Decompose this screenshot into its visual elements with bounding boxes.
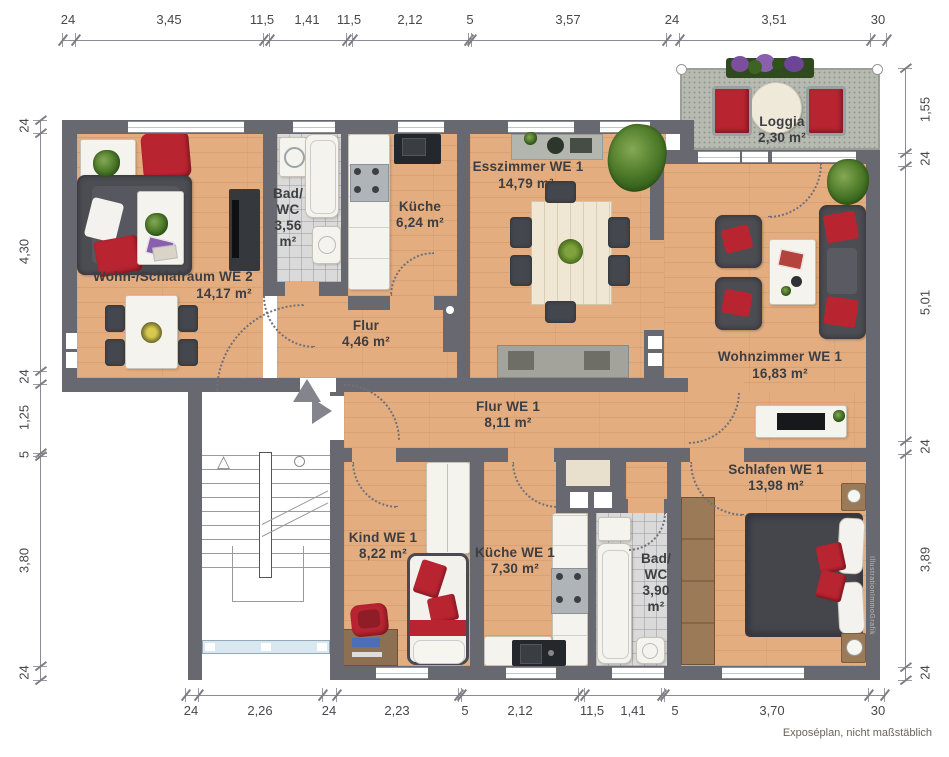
dim-label: 1,55 — [918, 86, 933, 134]
dim-label: 2,23 — [373, 703, 421, 718]
stair-pole-icon — [294, 456, 305, 467]
room-label-esszimmer: Esszimmer WE 1 — [452, 159, 604, 174]
dim-label: 24 — [918, 135, 933, 183]
dim-label: 24 — [17, 649, 32, 697]
pillow — [721, 289, 753, 317]
chair — [510, 255, 532, 286]
tv-screen — [777, 413, 825, 430]
dim-tick — [905, 68, 906, 680]
dim-label: 24 — [305, 703, 353, 718]
room-area-esszimmer: 14,79 m² — [488, 176, 564, 191]
dim-label: 11,5 — [238, 12, 286, 27]
shaft-niche — [66, 352, 77, 368]
pillow — [823, 210, 859, 243]
pillow — [413, 640, 465, 664]
wardrobe — [426, 462, 470, 554]
dim-label: 4,30 — [17, 228, 32, 276]
burner — [574, 596, 581, 603]
chair-seat — [357, 609, 381, 629]
dim-tick — [185, 695, 884, 696]
flowers — [784, 56, 804, 72]
room-area-kueche-we1: 7,30 m² — [477, 561, 553, 576]
door-schlafen — [690, 448, 744, 462]
dim-label: 24 — [918, 649, 933, 697]
loggia-post-icon — [676, 64, 687, 75]
dim-tick — [40, 120, 41, 680]
dim-label: 2,26 — [236, 703, 284, 718]
room-label-we2-bad: Bad/ — [264, 186, 312, 201]
bathtub-inner — [310, 140, 336, 214]
shaft-niche — [648, 336, 662, 349]
window — [293, 121, 335, 133]
laptop — [352, 638, 380, 647]
dim-label: 5 — [651, 703, 699, 718]
flowers-leaf — [772, 58, 784, 70]
room-area-loggia: 2,30 m² — [746, 130, 818, 145]
washer-door-icon — [284, 147, 305, 168]
chair — [608, 217, 630, 248]
dim-label: 5,01 — [918, 279, 933, 327]
blanket — [410, 620, 466, 636]
room-label-we2: Wohn-/Schlafraum WE 2 — [75, 269, 271, 284]
sofa-seat — [827, 248, 857, 294]
dim-label: 24 — [648, 12, 696, 27]
shaft-niche — [570, 492, 588, 508]
chair — [510, 217, 532, 248]
dim-label: 3,89 — [918, 536, 933, 584]
pillow — [815, 542, 846, 575]
window — [128, 121, 244, 133]
dim-tick — [62, 40, 886, 41]
chair — [178, 305, 198, 332]
room-label-bad-we1: WC — [632, 567, 680, 582]
shaft-niche — [66, 333, 77, 349]
dim-label: 11,5 — [325, 12, 373, 27]
door-wohnzimmer — [688, 378, 744, 392]
dim-label: 3,51 — [750, 12, 798, 27]
window — [506, 667, 556, 679]
lamp-icon — [846, 639, 863, 656]
window — [722, 667, 804, 679]
burner — [354, 168, 361, 175]
room-label-bad-we1: Bad/ — [632, 551, 680, 566]
bathtub-inner — [602, 550, 629, 659]
dim-label: 5 — [441, 703, 489, 718]
pillow — [823, 296, 859, 328]
chair — [608, 255, 630, 286]
sideboard-door — [584, 351, 610, 370]
bowl — [141, 322, 162, 343]
dim-label: 1,41 — [283, 12, 331, 27]
sink-basin — [402, 138, 426, 156]
room-label-we2-bad: WC — [264, 202, 312, 217]
room-area-wohnzimmer: 16,83 m² — [742, 366, 818, 381]
coffee-table — [769, 239, 816, 305]
footer-note: Exposéplan, nicht maßstäblich — [560, 727, 932, 739]
dim-label: 5 — [446, 12, 494, 27]
lamp-icon — [847, 489, 861, 503]
room-area-schlafen: 13,98 m² — [738, 478, 814, 493]
room-label-flur-we1: Flur WE 1 — [462, 399, 554, 414]
kitchen-counter — [348, 134, 390, 290]
room-label-loggia: Loggia — [748, 114, 816, 129]
dim-label: 3,45 — [145, 12, 193, 27]
watermark: IllustrationImmoGrafik — [868, 556, 875, 668]
door-kueche-we1 — [508, 448, 554, 462]
flowers-leaf — [748, 60, 762, 74]
stair-direction-icon: △ — [217, 452, 230, 472]
room-area-kind: 8,22 m² — [345, 546, 421, 561]
dim-label: 3,70 — [748, 703, 796, 718]
door-we1-entrance — [330, 396, 344, 440]
entrance-arrow-icon — [312, 398, 332, 424]
stair-landing-outline — [232, 546, 304, 602]
chair — [105, 305, 125, 332]
burner — [556, 573, 563, 580]
armchair — [140, 130, 192, 181]
burner — [372, 168, 379, 175]
room-area-we2-kueche: 6,24 m² — [384, 215, 456, 230]
chair — [545, 301, 576, 323]
flue-vent-icon — [446, 306, 454, 314]
decor-box — [570, 138, 592, 153]
room-area-bad-we1: 3,90 — [632, 583, 680, 598]
sink-basin — [520, 644, 542, 664]
wall-stair-west — [188, 392, 202, 680]
room-area-we2-flur: 4,46 m² — [328, 334, 404, 349]
room-area-we2-bad: 3,56 — [264, 218, 312, 233]
shaft-niche — [594, 492, 612, 508]
window — [698, 151, 740, 163]
room-area-we2: 14,17 m² — [186, 286, 262, 301]
toilet — [598, 517, 631, 541]
wall-we2-bad-east — [341, 134, 348, 282]
dim-label: 1,41 — [609, 703, 657, 718]
wardrobe-door-line — [447, 464, 448, 552]
window — [398, 121, 444, 133]
window — [612, 667, 664, 679]
chair — [178, 339, 198, 366]
dim-label: 3,80 — [17, 537, 32, 585]
desk-item — [352, 652, 382, 657]
room-area-bad-we1: m² — [632, 599, 680, 614]
dim-label: 30 — [854, 12, 902, 27]
window — [508, 121, 574, 133]
door-we2-bad — [285, 282, 319, 296]
loggia-chair — [712, 86, 752, 136]
room-label-kind: Kind WE 1 — [346, 530, 420, 545]
room-label-kueche-we1: Küche WE 1 — [474, 545, 556, 560]
dim-label: 2,12 — [386, 12, 434, 27]
door-kind — [352, 448, 396, 462]
dim-label: 30 — [854, 703, 902, 718]
dim-label: 24 — [167, 703, 215, 718]
burner — [372, 186, 379, 193]
room-area-flur-we1: 8,11 m² — [470, 415, 546, 430]
faucet-icon — [548, 650, 554, 656]
room-label-schlafen: Schlafen WE 1 — [714, 462, 838, 477]
plant-pot — [547, 137, 564, 154]
window-post — [317, 643, 327, 651]
floor-plan: △ — [0, 0, 949, 757]
burner — [354, 186, 361, 193]
dim-label: 24 — [918, 423, 933, 471]
tv-screen — [232, 200, 239, 258]
chair — [105, 339, 125, 366]
dim-label: 2,12 — [496, 703, 544, 718]
dim-label: 24 — [44, 12, 92, 27]
loggia-post-icon — [872, 64, 883, 75]
dim-label: 5 — [17, 431, 32, 479]
bowl — [558, 239, 583, 264]
room-label-we2-kueche: Küche — [388, 199, 452, 214]
burner — [574, 573, 581, 580]
burner — [556, 596, 563, 603]
sink-bowl — [642, 643, 658, 659]
dim-label: 24 — [17, 102, 32, 150]
shaft-niche — [648, 353, 662, 366]
room-area-we2-bad: m² — [264, 234, 312, 249]
window-post — [205, 643, 215, 651]
door-bad-we1 — [628, 499, 664, 513]
loggia-door — [742, 151, 768, 163]
shaft-panel — [566, 460, 610, 486]
sideboard-door — [508, 351, 534, 370]
sink-bowl — [318, 236, 336, 254]
window — [376, 667, 428, 679]
cup — [791, 276, 802, 287]
flowers — [731, 56, 749, 72]
dim-label: 3,57 — [544, 12, 592, 27]
door-we2-kueche — [390, 296, 434, 310]
room-label-wohnzimmer: Wohnzimmer WE 1 — [698, 349, 862, 364]
room-label-we2-flur: Flur — [338, 318, 394, 333]
window-post — [261, 643, 271, 651]
wardrobe — [681, 497, 715, 665]
